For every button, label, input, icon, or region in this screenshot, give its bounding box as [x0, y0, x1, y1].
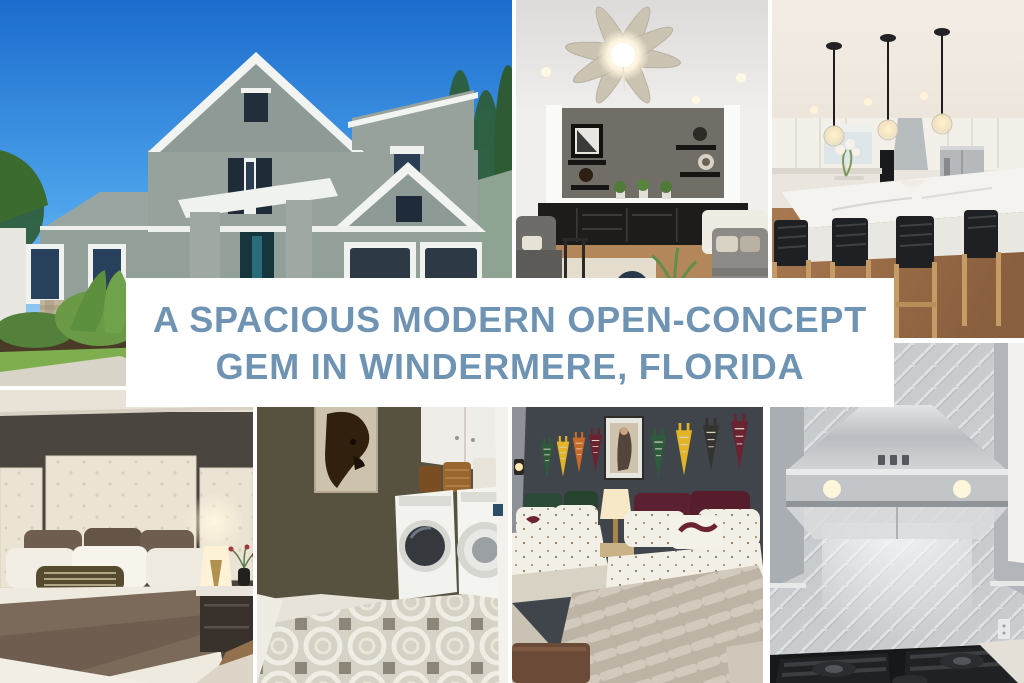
laundry-room-photo: [257, 404, 508, 683]
wall-sconce: [514, 459, 524, 475]
nightstand: [196, 586, 253, 652]
collage-canvas: A SPACIOUS MODERN OPEN-CONCEPT GEM IN WI…: [0, 0, 1024, 683]
bedroom-illustration: [0, 390, 253, 683]
title-banner: A SPACIOUS MODERN OPEN-CONCEPT GEM IN WI…: [126, 278, 894, 407]
cabinet-sliver: [1008, 343, 1024, 563]
hood-light: [823, 480, 841, 498]
dog-portrait: [315, 404, 377, 492]
title-line-2: GEM IN WINDERMERE, FLORIDA: [216, 343, 805, 390]
recessed-light: [810, 106, 818, 114]
recessed-light: [920, 92, 928, 100]
countertop: [546, 198, 740, 203]
ceiling: [772, 0, 1024, 130]
leather-ottoman: [512, 643, 590, 683]
counter: [772, 168, 882, 174]
laundry-bag: [473, 458, 499, 492]
outlet: [998, 619, 1010, 639]
pennant-bedroom-photo: [512, 407, 763, 683]
framed-poster: [605, 417, 643, 479]
washer: [395, 490, 457, 600]
niche-column: [546, 105, 562, 210]
counter-plants: [614, 179, 672, 199]
door-latch: [493, 504, 503, 516]
recessed-light: [736, 73, 746, 83]
recessed-light: [541, 67, 551, 77]
under-hood-light: [822, 523, 972, 653]
left-bed: [512, 491, 608, 603]
niche-column: [724, 105, 740, 210]
pillows: [6, 528, 210, 592]
laundry-illustration: [257, 404, 508, 683]
pennant-bedroom-illustration: [512, 407, 763, 683]
hood-light: [953, 480, 971, 498]
recessed-light: [864, 98, 872, 106]
bed-skirt: [726, 641, 763, 683]
table-lamp: [200, 546, 232, 586]
snake-pillow: [670, 515, 722, 549]
recessed-light: [692, 96, 700, 104]
title-line-1: A SPACIOUS MODERN OPEN-CONCEPT: [153, 296, 867, 343]
hood-buttons: [878, 455, 909, 465]
primary-bedroom-photo: [0, 390, 253, 683]
